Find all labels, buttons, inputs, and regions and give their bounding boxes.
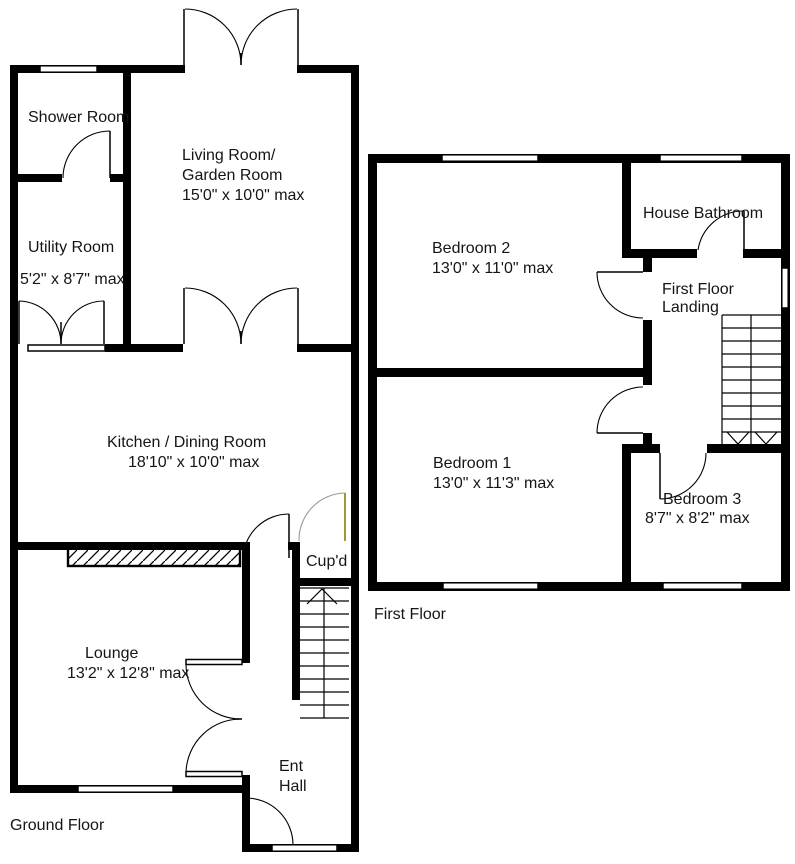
floor-caption-ground-floor: Ground Floor: [10, 817, 105, 834]
shower-room-door: [63, 131, 110, 178]
room-label-living-room-line2: Garden Room: [182, 167, 283, 184]
wall: [105, 344, 131, 352]
living-kitchen-french-doors: [184, 288, 298, 344]
room-label-utility-room: Utility Room: [28, 239, 114, 256]
room-label-bedroom2: Bedroom 2: [432, 240, 510, 257]
utility-french-doors: [19, 301, 104, 344]
front-entrance-door: [245, 798, 293, 845]
wall: [368, 368, 643, 377]
window: [78, 786, 173, 792]
window: [28, 345, 105, 351]
wall: [743, 249, 790, 258]
wall: [242, 542, 250, 663]
room-label-house-bathroom: House Bathroom: [643, 205, 763, 222]
lounge-hall-double-doors: [186, 660, 242, 777]
wall: [131, 65, 185, 73]
ground-floor-plan: Shower Room Utility Room 5'2" x 8'7" max…: [10, 9, 359, 852]
window: [272, 845, 337, 851]
stairs-up-arrow: [307, 589, 337, 604]
wall: [131, 344, 183, 352]
wall: [643, 255, 652, 272]
window: [663, 583, 742, 589]
room-label-ent-hall-line2: Hall: [279, 778, 307, 795]
room-dims-bedroom2: 13'0" x 11'0" max: [432, 260, 553, 277]
stairs-down-arrow: [727, 432, 777, 444]
window: [442, 155, 538, 161]
wall: [292, 542, 300, 700]
staircase-ground-floor: [300, 588, 349, 718]
wall: [10, 344, 18, 352]
room-label-shower-room: Shower Room: [28, 109, 129, 126]
floorplan-drawing: Shower Room Utility Room 5'2" x 8'7" max…: [0, 0, 795, 864]
cupboard-door: [299, 493, 345, 541]
first-floor-plan: Bedroom 2 13'0" x 11'0" max House Bathro…: [368, 154, 790, 623]
bedroom2-door: [597, 272, 643, 318]
room-label-bedroom3: Bedroom 3: [663, 491, 741, 508]
room-dims-lounge: 13'2" x 12'8" max: [67, 665, 189, 682]
floor-caption-first-floor: First Floor: [374, 606, 447, 623]
wall: [622, 249, 697, 258]
wall: [292, 578, 353, 586]
window: [660, 155, 742, 161]
wall: [10, 174, 62, 182]
room-label-bedroom1: Bedroom 1: [433, 455, 511, 472]
room-label-landing-line2: Landing: [662, 299, 719, 316]
bedroom1-door: [597, 387, 643, 433]
room-label-lounge: Lounge: [85, 645, 138, 662]
hatched-strip: [68, 548, 240, 566]
wall: [297, 344, 359, 352]
wall: [643, 320, 652, 385]
room-label-cupboard: Cup'd: [306, 553, 347, 570]
room-dims-bedroom1: 13'0" x 11'3" max: [433, 475, 554, 492]
floorplan-page: Shower Room Utility Room 5'2" x 8'7" max…: [0, 0, 795, 864]
staircase-first-floor: [722, 315, 781, 445]
room-label-living-room-line1: Living Room/: [182, 147, 276, 164]
wall: [297, 65, 359, 73]
landing-window: [782, 268, 788, 308]
room-label-ent-hall-line1: Ent: [279, 758, 304, 775]
window: [40, 66, 97, 72]
room-label-kitchen: Kitchen / Dining Room: [107, 434, 266, 451]
wall: [622, 444, 631, 591]
garden-french-doors: [184, 9, 298, 65]
room-label-landing-line1: First Floor: [662, 281, 735, 298]
wall: [622, 154, 631, 258]
window: [443, 583, 538, 589]
room-dims-utility-room: 5'2" x 8'7" max: [20, 271, 125, 288]
wall: [781, 154, 790, 591]
room-dims-living-room: 15'0" x 10'0" max: [182, 187, 304, 204]
room-dims-kitchen: 18'10" x 10'0" max: [128, 454, 259, 471]
wall: [351, 65, 359, 852]
room-dims-bedroom3: 8'7" x 8'2" max: [645, 510, 750, 527]
